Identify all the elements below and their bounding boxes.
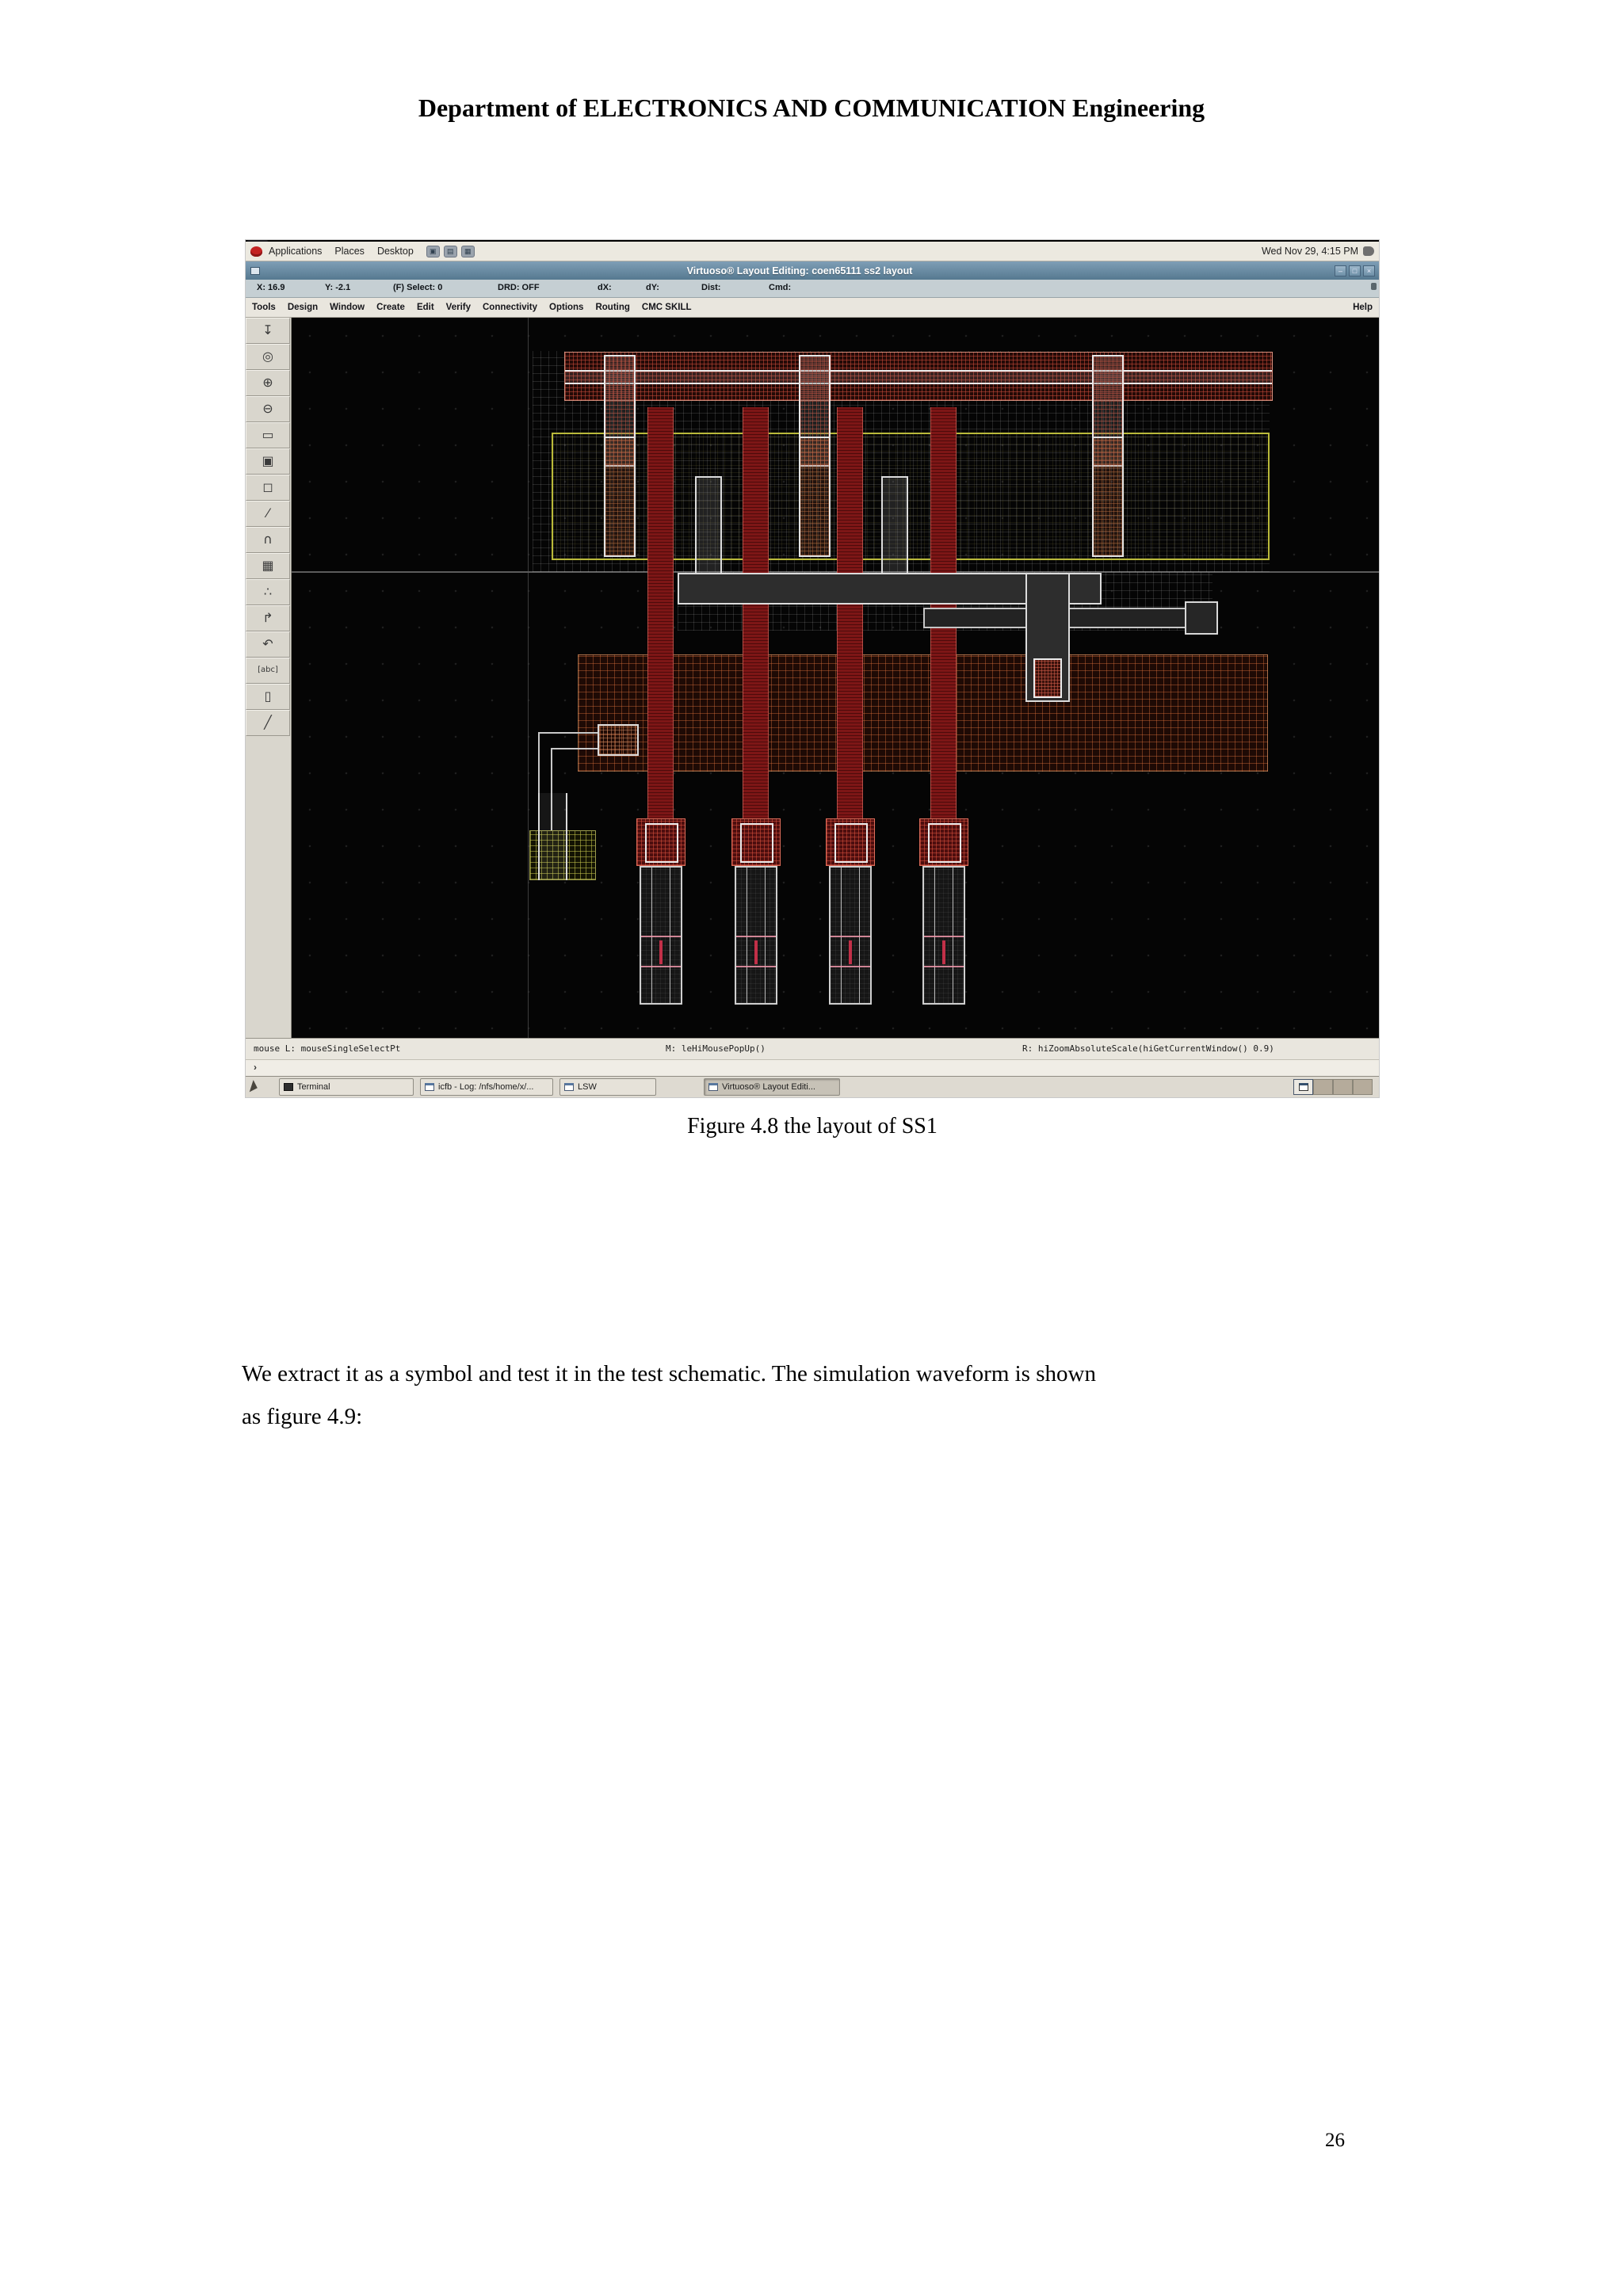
right-drop-contact	[1033, 658, 1062, 698]
show-desktop-icon[interactable]	[250, 1080, 260, 1094]
pin-net-label-1	[641, 936, 681, 967]
statusbar-grip	[1371, 283, 1377, 290]
menu-design[interactable]: Design	[288, 303, 318, 312]
window-title: Virtuoso® Layout Editing: coen65111 ss2 …	[265, 265, 1335, 277]
input-contact-pad-3	[826, 818, 875, 866]
mouse-right-binding: R: hiZoomAbsoluteScale(hiGetCurrentWindo…	[1022, 1043, 1274, 1054]
menu-help[interactable]: Help	[1353, 303, 1373, 312]
window-menu-icon[interactable]	[250, 267, 260, 275]
taskbar-label: Virtuoso® Layout Editi...	[722, 1082, 815, 1092]
stretch-icon[interactable]: ▭	[246, 422, 290, 448]
document-page: Department of ELECTRONICS AND COMMUNICAT…	[0, 0, 1623, 2296]
taskbar-item-icfb-log[interactable]: icfb - Log: /nfs/home/x/...	[420, 1078, 553, 1096]
taskbar-item-lsw[interactable]: LSW	[559, 1078, 656, 1096]
pin-net-label-4	[924, 936, 964, 967]
panel-clock[interactable]: Wed Nov 29, 4:15 PM	[1262, 246, 1358, 257]
pin-label-mark	[942, 940, 945, 964]
screenshot-launcher-icon[interactable]: ▣	[426, 246, 440, 257]
menu-window[interactable]: Window	[330, 303, 365, 312]
window-controls: – □ ×	[1335, 265, 1375, 277]
taskbar-item-virtuoso[interactable]: Virtuoso® Layout Editi...	[704, 1078, 840, 1096]
fill-pattern-icon[interactable]: ▦	[246, 553, 290, 579]
menu-tools[interactable]: Tools	[252, 303, 276, 312]
menu-routing[interactable]: Routing	[595, 303, 629, 312]
menu-edit[interactable]: Edit	[417, 303, 434, 312]
input-contact-pad-2	[731, 818, 781, 866]
page-title: Department of ELECTRONICS AND COMMUNICAT…	[0, 93, 1623, 123]
volume-icon[interactable]	[1363, 246, 1374, 256]
copy-icon[interactable]: ▣	[246, 448, 290, 475]
input-contact-pad-1	[636, 818, 685, 866]
poly-gate-1	[647, 407, 674, 818]
window-titlebar[interactable]: Virtuoso® Layout Editing: coen65111 ss2 …	[246, 261, 1379, 280]
prompt-caret: ›	[254, 1062, 257, 1073]
menu-create[interactable]: Create	[376, 303, 405, 312]
figure-caption: Figure 4.8 the layout of SS1	[246, 1114, 1379, 1139]
panel-right-area: Wed Nov 29, 4:15 PM	[1262, 246, 1374, 257]
menu-cmc-skill[interactable]: CMC SKILL	[642, 303, 692, 312]
workspace-2[interactable]	[1313, 1079, 1333, 1095]
window-icon	[564, 1083, 574, 1091]
contact-column-mid-3	[1092, 437, 1124, 557]
input-pin-3	[829, 866, 872, 1005]
place-instance-icon[interactable]: ↧	[246, 318, 290, 344]
pin-label-mark	[849, 940, 852, 964]
zoom-out-icon[interactable]: ⊖	[246, 396, 290, 422]
wire-icon[interactable]: ↱	[246, 605, 290, 631]
label-icon[interactable]: [abc]	[246, 658, 290, 684]
page-number: 26	[1325, 2130, 1345, 2152]
input-contact-pad-4	[919, 818, 968, 866]
pad-inner-via-3	[834, 823, 868, 863]
input-pin-4	[922, 866, 965, 1005]
virtuoso-screenshot: Applications Places Desktop ▣ ▤ ▦ Wed No…	[246, 240, 1379, 1097]
workspace-4[interactable]	[1353, 1079, 1373, 1095]
undo-icon[interactable]: ↶	[246, 631, 290, 658]
diffusion-left-contact	[598, 724, 639, 756]
status-x: X: 16.9	[257, 283, 285, 292]
pad-inner-via-1	[645, 823, 678, 863]
window-menubar: Tools Design Window Create Edit Verify C…	[246, 298, 1379, 318]
coordinate-status-bar: X: 16.9 Y: -2.1 (F) Select: 0 DRD: OFF d…	[246, 280, 1379, 298]
taskbar-label: icfb - Log: /nfs/home/x/...	[438, 1082, 533, 1092]
input-pin-1	[640, 866, 682, 1005]
left-toolbar: ↧ ◎ ⊕ ⊖ ▭ ▣ ◻ ⁄ ∩ ▦ ∴ ↱ ↶ [abc] ▯ ╱	[246, 318, 292, 1038]
vdd-metal-stripe	[565, 370, 1272, 384]
metal-wire-end-contact	[1185, 601, 1218, 635]
redhat-logo-icon[interactable]	[250, 246, 262, 257]
status-y: Y: -2.1	[325, 283, 350, 292]
status-drd: DRD: OFF	[498, 283, 540, 292]
mouse-bindings-bar: mouse L: mouseSingleSelectPt M: leHiMous…	[246, 1038, 1379, 1059]
knife-icon[interactable]: ⁄	[246, 501, 290, 527]
poly-gate-2	[743, 407, 769, 818]
body-text-line-1: We extract it as a symbol and test it in…	[242, 1361, 1446, 1387]
menu-options[interactable]: Options	[549, 303, 583, 312]
window-icon	[708, 1083, 718, 1091]
status-cmd: Cmd:	[769, 283, 791, 292]
workspace-1[interactable]	[1293, 1079, 1313, 1095]
ruler-icon[interactable]: ╱	[246, 710, 290, 736]
terminal-icon	[284, 1083, 293, 1091]
instances-icon[interactable]: ∴	[246, 579, 290, 605]
terminal-launcher-icon[interactable]: ▤	[444, 246, 457, 257]
close-button[interactable]: ×	[1363, 265, 1375, 277]
pad-inner-via-4	[928, 823, 961, 863]
status-dist: Dist:	[701, 283, 720, 292]
layout-canvas[interactable]	[292, 318, 1379, 1038]
maximize-button[interactable]: □	[1349, 265, 1361, 277]
status-dy: dY:	[646, 283, 659, 292]
window-icon	[425, 1083, 434, 1091]
pin-label-mark	[754, 940, 758, 964]
menu-connectivity[interactable]: Connectivity	[483, 303, 537, 312]
pin-net-label-2	[736, 936, 776, 967]
path-icon[interactable]: ∩	[246, 527, 290, 553]
mouse-middle-binding: M: leHiMousePopUp()	[666, 1043, 766, 1054]
pin-label-mark	[659, 940, 663, 964]
redraw-icon[interactable]: ◎	[246, 344, 290, 370]
zoom-in-icon[interactable]: ⊕	[246, 370, 290, 396]
contact-column-mid-2	[799, 437, 831, 557]
pad-inner-via-2	[740, 823, 773, 863]
workspace-3[interactable]	[1333, 1079, 1353, 1095]
status-select: (F) Select: 0	[393, 283, 442, 292]
menu-verify[interactable]: Verify	[446, 303, 471, 312]
panel-menu-desktop[interactable]: Desktop	[377, 246, 414, 257]
taskbar-label: Terminal	[297, 1082, 330, 1092]
command-prompt-line[interactable]: ›	[246, 1059, 1379, 1076]
window-main-area: ↧ ◎ ⊕ ⊖ ▭ ▣ ◻ ⁄ ∩ ▦ ∴ ↱ ↶ [abc] ▯ ╱	[246, 318, 1379, 1038]
canvas-y-axis-line	[528, 318, 529, 1038]
panel-menu-places[interactable]: Places	[334, 246, 365, 257]
body-text-line-2: as figure 4.9:	[242, 1404, 1446, 1430]
right-metal-drop	[1025, 573, 1070, 702]
status-dx: dX:	[598, 283, 612, 292]
substrate-tap-metal-bar	[538, 793, 567, 880]
mouse-left-binding: mouse L: mouseSingleSelectPt	[254, 1043, 400, 1054]
desktop-taskbar: Terminal icfb - Log: /nfs/home/x/... LSW…	[246, 1076, 1379, 1097]
workspace-switcher	[1293, 1079, 1373, 1095]
browser-launcher-icon[interactable]: ▦	[461, 246, 475, 257]
pin-net-label-3	[831, 936, 870, 967]
diffusion-region	[578, 654, 1268, 772]
input-pin-2	[735, 866, 777, 1005]
contact-column-mid-1	[604, 437, 636, 557]
panel-menu-applications[interactable]: Applications	[269, 246, 322, 257]
poly-gate-3	[837, 407, 863, 818]
rect-icon[interactable]: ▯	[246, 684, 290, 710]
taskbar-label: LSW	[578, 1082, 597, 1092]
vdd-rail	[564, 352, 1273, 401]
move-icon[interactable]: ◻	[246, 475, 290, 501]
desktop-top-panel: Applications Places Desktop ▣ ▤ ▦ Wed No…	[246, 242, 1379, 261]
taskbar-item-terminal[interactable]: Terminal	[279, 1078, 414, 1096]
minimize-button[interactable]: –	[1335, 265, 1346, 277]
workspace-window-icon	[1299, 1083, 1308, 1091]
